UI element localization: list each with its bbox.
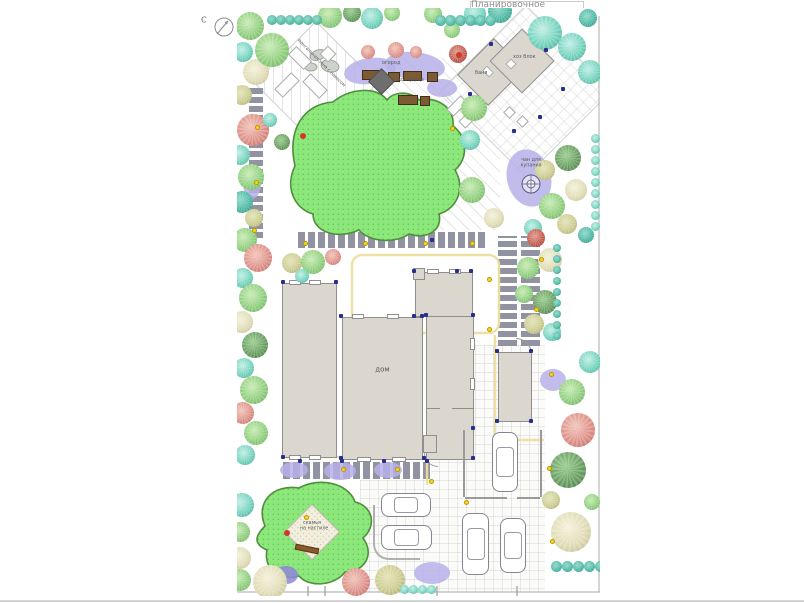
- light-dot: [341, 467, 346, 472]
- light-dot: [450, 126, 455, 131]
- lamp-dot: [340, 459, 344, 463]
- light-dot: [395, 467, 400, 472]
- lamp-dot: [495, 349, 499, 353]
- lamp-dot: [538, 115, 542, 119]
- lamp-dot: [469, 269, 473, 273]
- bathhouse-label: баня: [475, 70, 487, 76]
- garden-label: огород: [382, 60, 400, 66]
- light-dot: [470, 241, 475, 246]
- lamp-dot: [412, 314, 416, 318]
- lamp-dot: [471, 313, 475, 317]
- light-dot: [254, 180, 259, 185]
- lamp-dot: [561, 87, 565, 91]
- accent-dot: [456, 52, 462, 58]
- light-dot: [487, 327, 492, 332]
- light-dot: [539, 257, 544, 262]
- north-label: С: [201, 16, 207, 25]
- lamp-dot: [529, 349, 533, 353]
- firepit-label: кострище: [398, 77, 424, 83]
- light-dot: [547, 466, 552, 471]
- lamp-dot: [430, 238, 434, 242]
- light-dot: [549, 372, 554, 377]
- light-dot: [255, 125, 260, 130]
- light-dot: [303, 241, 308, 246]
- utility-label: хоз блок: [513, 54, 536, 60]
- lamp-dot: [471, 426, 475, 430]
- lamp-dot: [382, 459, 386, 463]
- lamp-dot: [495, 419, 499, 423]
- lamp-dot: [512, 129, 516, 133]
- bench-label: скамья на настиле: [300, 520, 324, 531]
- lamp-dot: [425, 459, 429, 463]
- canvas: Планировочное решение С: [0, 0, 804, 603]
- light-dot: [429, 479, 434, 484]
- lamp-dot: [544, 48, 548, 52]
- page-divider: [0, 600, 804, 602]
- lamp-dot: [455, 269, 459, 273]
- lamp-dot: [424, 313, 428, 317]
- lamp-dot: [529, 419, 533, 423]
- site-plan: мангальная зона с навесом кострище огоро…: [237, 8, 600, 596]
- lamp-dot: [468, 92, 472, 96]
- house-label: дом: [354, 366, 411, 374]
- lamp-dot: [281, 280, 285, 284]
- light-dot: [534, 307, 539, 312]
- light-dot: [487, 277, 492, 282]
- light-dot: [363, 241, 368, 246]
- lamp-dot: [281, 455, 285, 459]
- accent-dot: [284, 530, 290, 536]
- tub-label: чан для купания: [520, 157, 541, 168]
- light-dot: [550, 539, 555, 544]
- lamp-dot: [412, 269, 416, 273]
- light-dot: [423, 241, 428, 246]
- lighting-layer: [237, 8, 600, 596]
- accent-dot: [300, 133, 306, 139]
- north-arrow: С: [201, 13, 241, 43]
- lamp-dot: [339, 314, 343, 318]
- lamp-dot: [334, 280, 338, 284]
- lamp-dot: [489, 42, 493, 46]
- light-dot: [252, 228, 257, 233]
- light-dot: [464, 500, 469, 505]
- lamp-dot: [298, 459, 302, 463]
- lamp-dot: [471, 456, 475, 460]
- compass-icon: [209, 13, 239, 43]
